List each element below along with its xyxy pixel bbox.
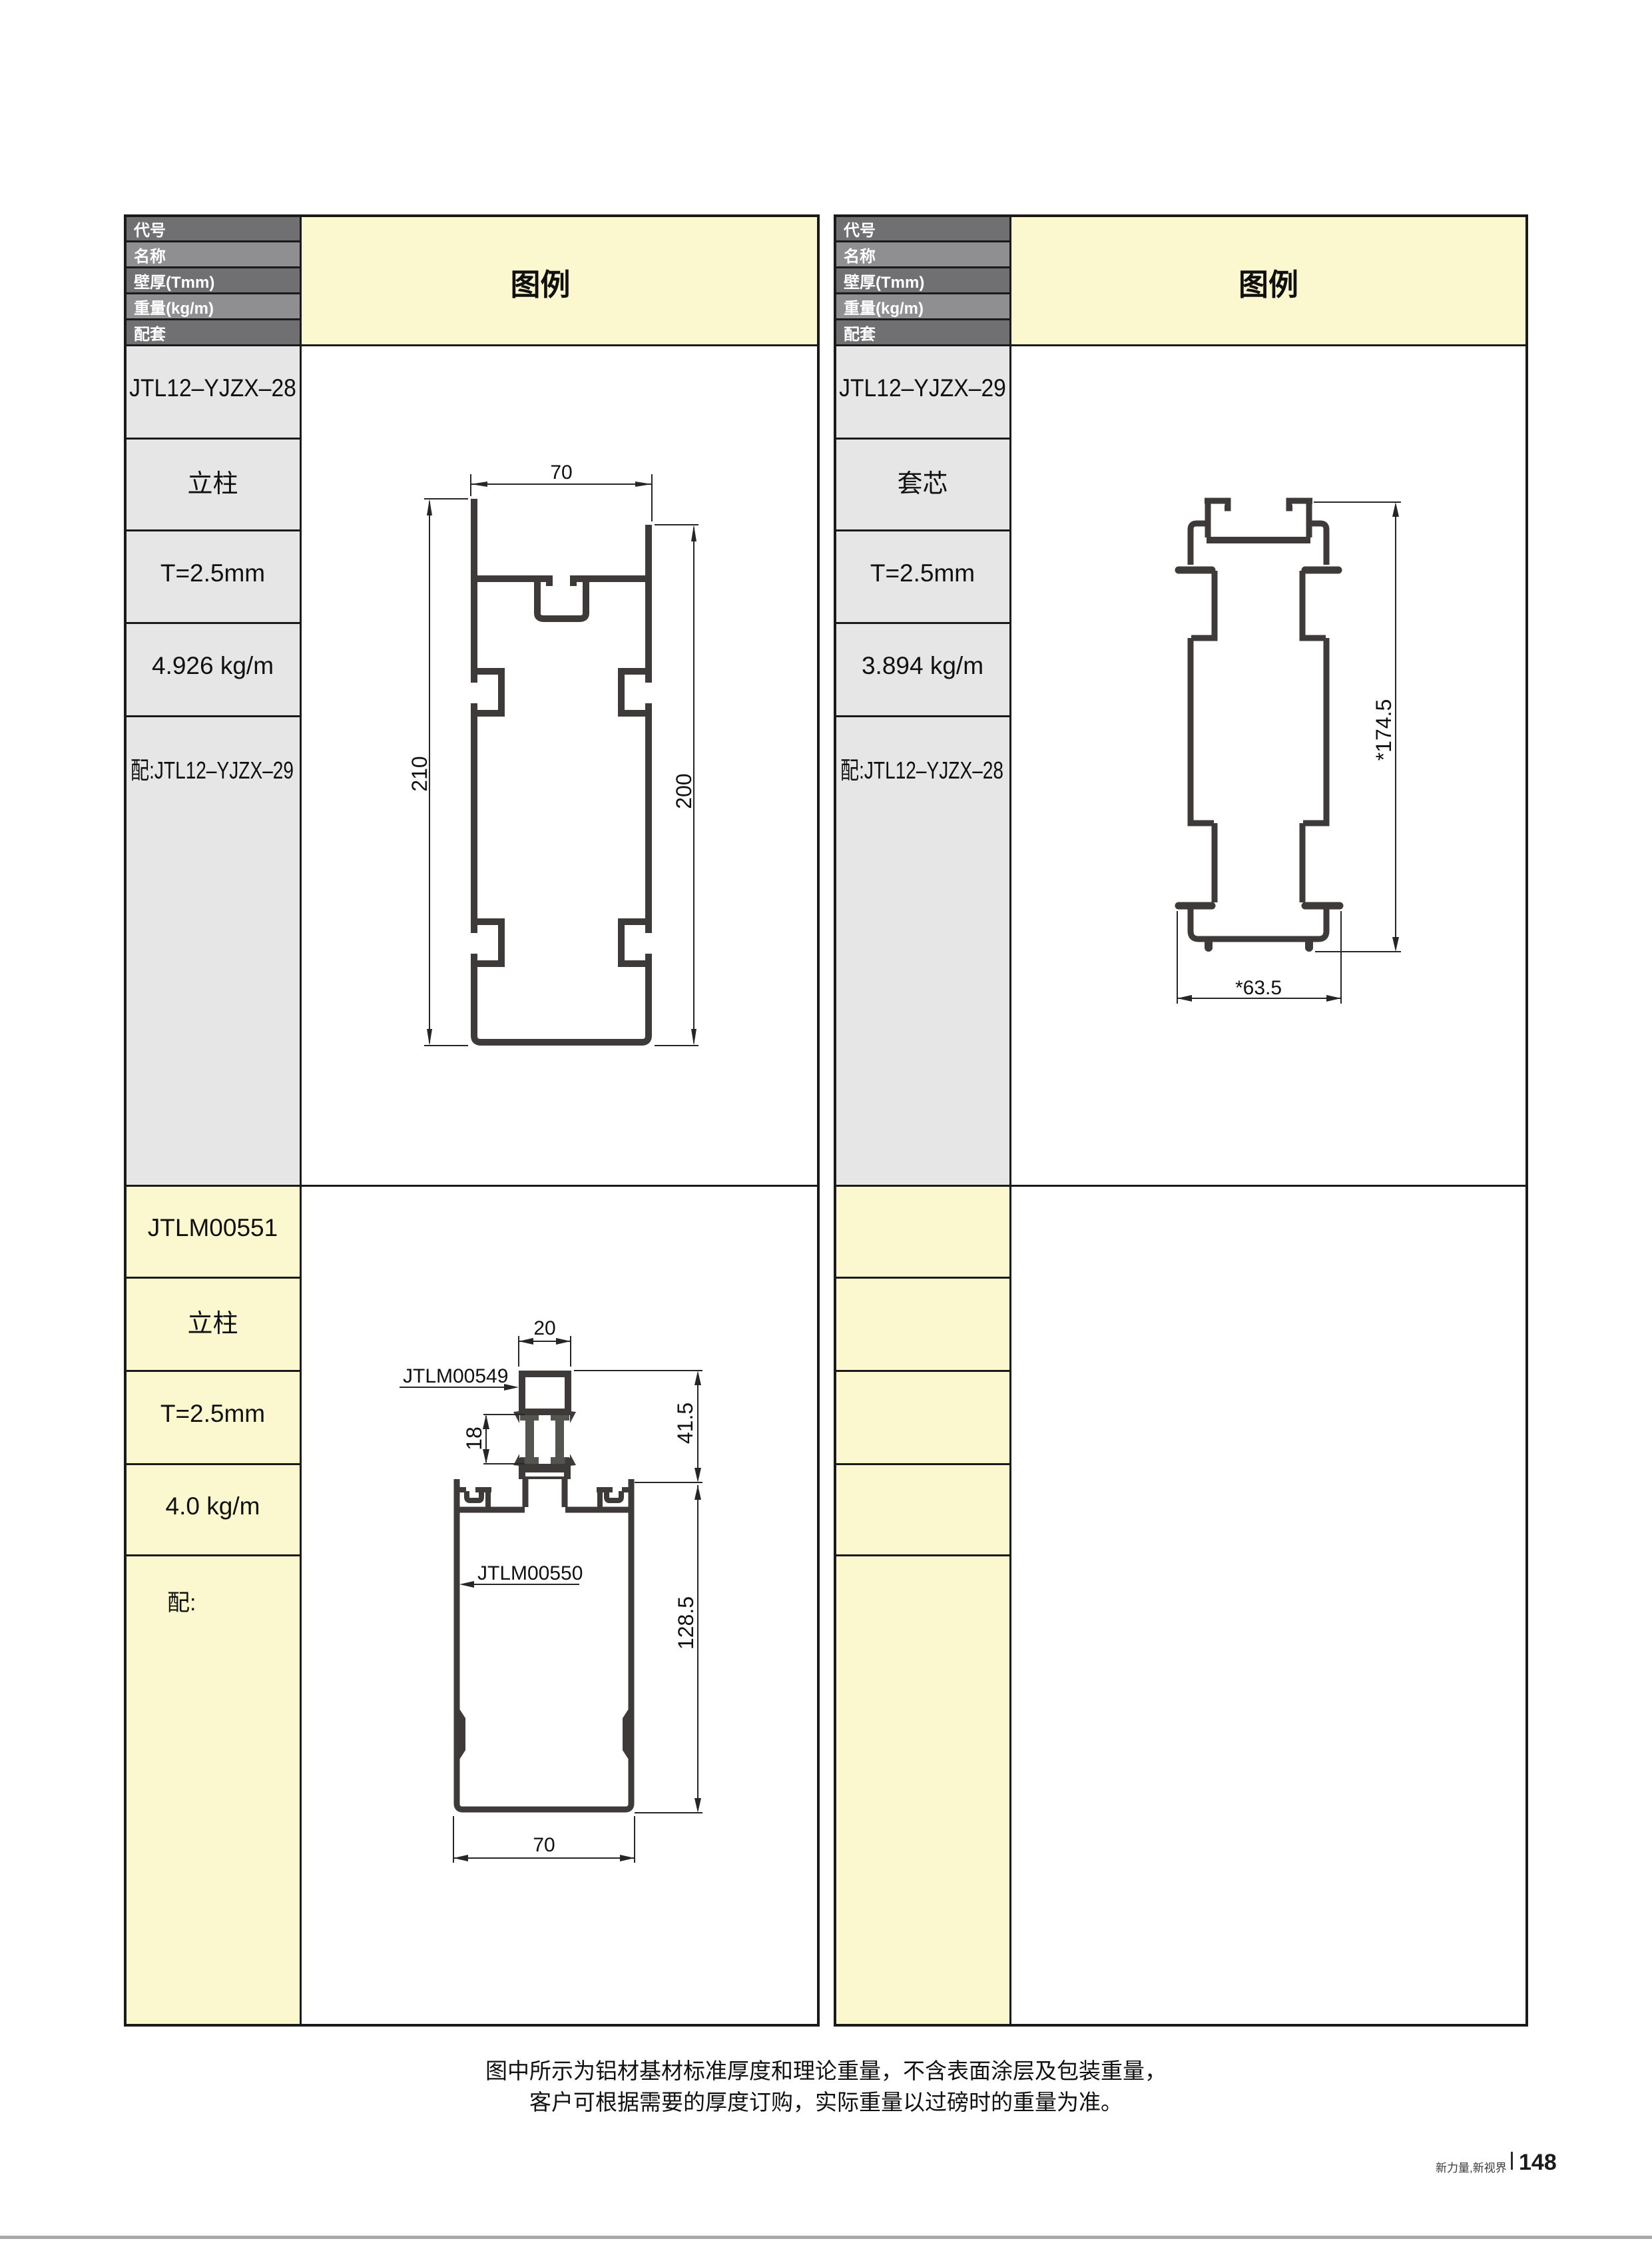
svg-text:41.5: 41.5 <box>673 1403 697 1444</box>
svg-text:210: 210 <box>408 756 431 791</box>
svg-text:20: 20 <box>533 1317 555 1339</box>
svg-text:200: 200 <box>672 773 696 808</box>
svg-text:*63.5: *63.5 <box>1235 977 1282 999</box>
svg-text:JTLM00550: JTLM00550 <box>477 1562 583 1584</box>
svg-text:128.5: 128.5 <box>674 1596 698 1650</box>
svg-text:70: 70 <box>550 462 572 483</box>
svg-text:18: 18 <box>462 1427 486 1450</box>
svg-text:70: 70 <box>533 1834 555 1856</box>
svg-text:*174.5: *174.5 <box>1372 699 1396 761</box>
svg-text:JTLM00549: JTLM00549 <box>403 1365 508 1387</box>
